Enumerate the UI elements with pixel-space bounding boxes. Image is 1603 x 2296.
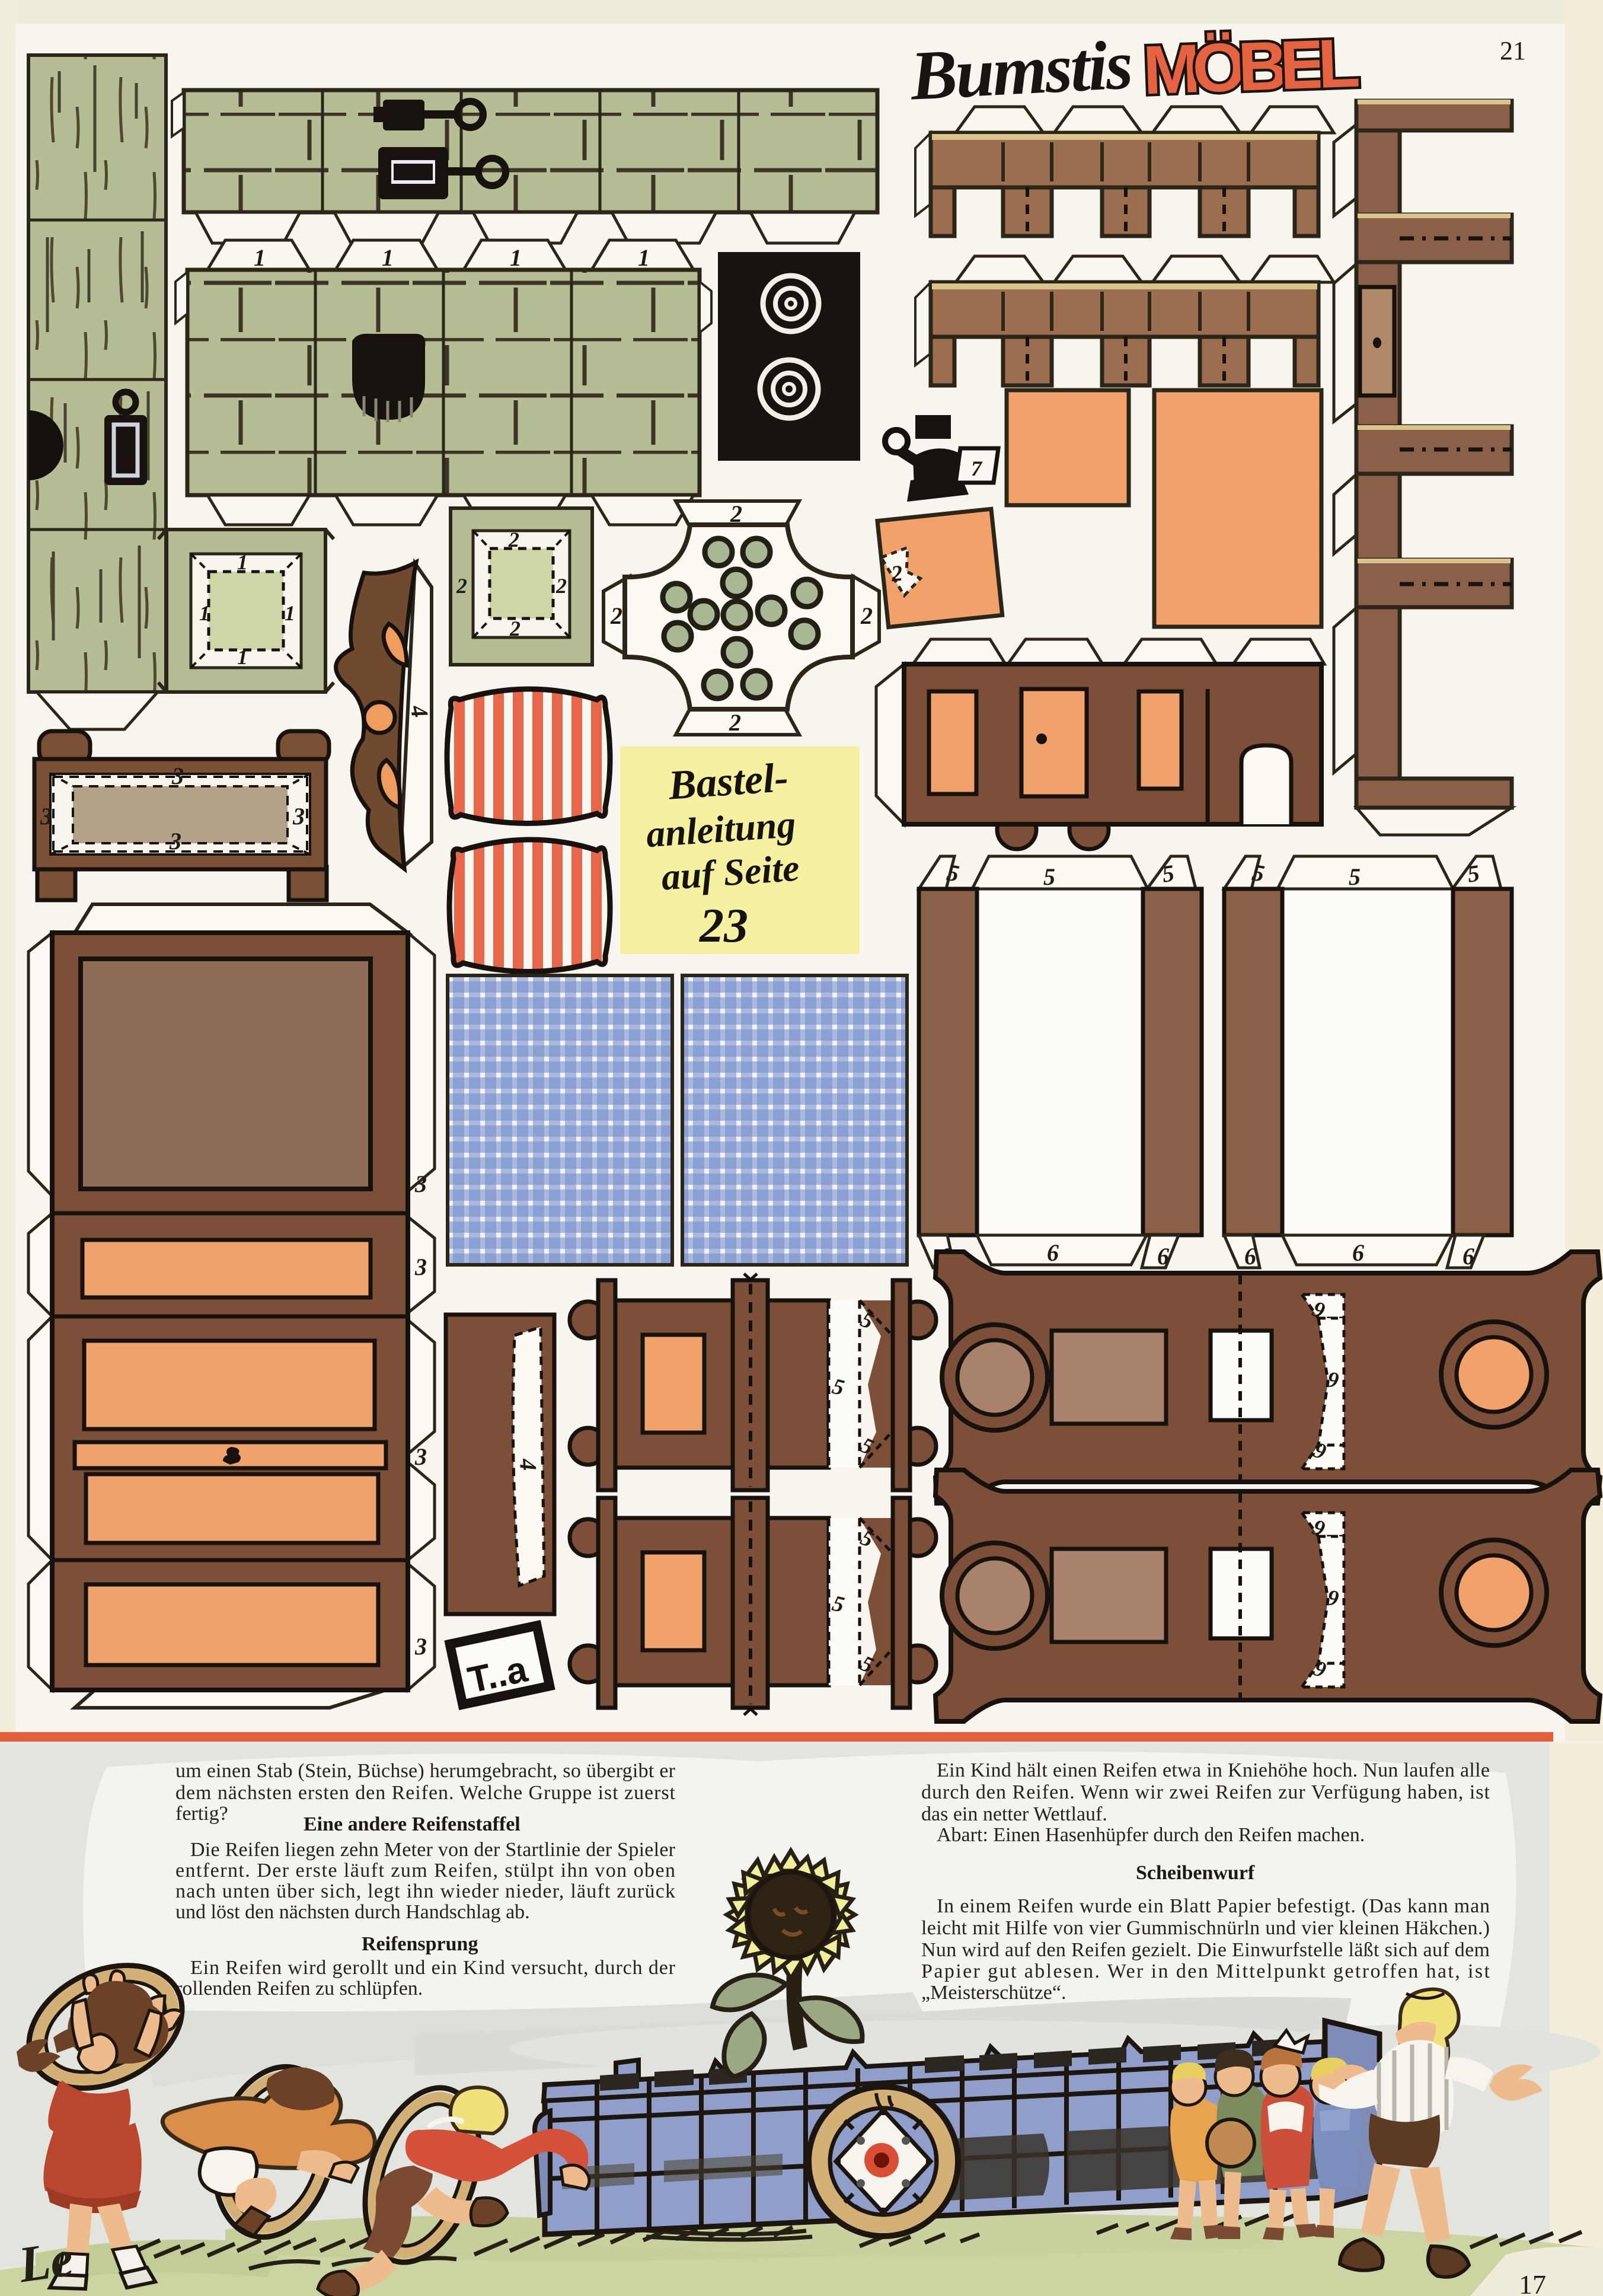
svg-text:MÖBEL: MÖBEL (1142, 24, 1361, 109)
svg-text:3: 3 (414, 1633, 427, 1660)
svg-text:2: 2 (555, 574, 567, 598)
svg-text:5: 5 (1043, 863, 1055, 890)
svg-text:2: 2 (860, 602, 873, 629)
svg-text:2: 2 (508, 528, 519, 551)
svg-text:6: 6 (1352, 1239, 1364, 1266)
svg-text:1: 1 (638, 244, 650, 271)
svg-text:2: 2 (610, 602, 622, 629)
svg-text:3: 3 (414, 1254, 427, 1280)
svg-text:23: 23 (699, 898, 748, 952)
svg-text:2: 2 (456, 574, 467, 598)
svg-text:3: 3 (169, 828, 181, 854)
svg-text:6: 6 (1463, 1243, 1474, 1270)
svg-text:1: 1 (254, 244, 266, 271)
svg-text:21: 21 (1500, 36, 1526, 65)
svg-text:4: 4 (515, 1457, 542, 1471)
svg-text:2: 2 (729, 709, 741, 736)
svg-text:2: 2 (730, 500, 742, 527)
svg-text:6: 6 (1157, 1243, 1169, 1270)
svg-text:6: 6 (1047, 1239, 1059, 1266)
svg-text:1: 1 (510, 244, 522, 271)
svg-text:1: 1 (285, 601, 295, 625)
svg-text:3: 3 (292, 803, 305, 830)
svg-text:1: 1 (237, 550, 248, 574)
svg-text:3: 3 (40, 803, 52, 830)
svg-text:2: 2 (509, 617, 521, 640)
svg-text:6: 6 (1244, 1243, 1256, 1270)
svg-text:1: 1 (199, 601, 210, 625)
svg-text:Bastel-: Bastel- (666, 755, 790, 809)
svg-text:5: 5 (1349, 863, 1361, 890)
svg-text:3: 3 (171, 763, 184, 789)
svg-text:3: 3 (414, 1171, 427, 1197)
svg-text:Bumstis: Bumstis (908, 25, 1135, 115)
svg-text:Le: Le (15, 2230, 76, 2294)
svg-text:1: 1 (382, 244, 394, 271)
svg-text:3: 3 (414, 1443, 427, 1470)
svg-text:1: 1 (237, 645, 248, 669)
svg-text:7: 7 (971, 457, 983, 480)
svg-text:17: 17 (1519, 2269, 1546, 2296)
